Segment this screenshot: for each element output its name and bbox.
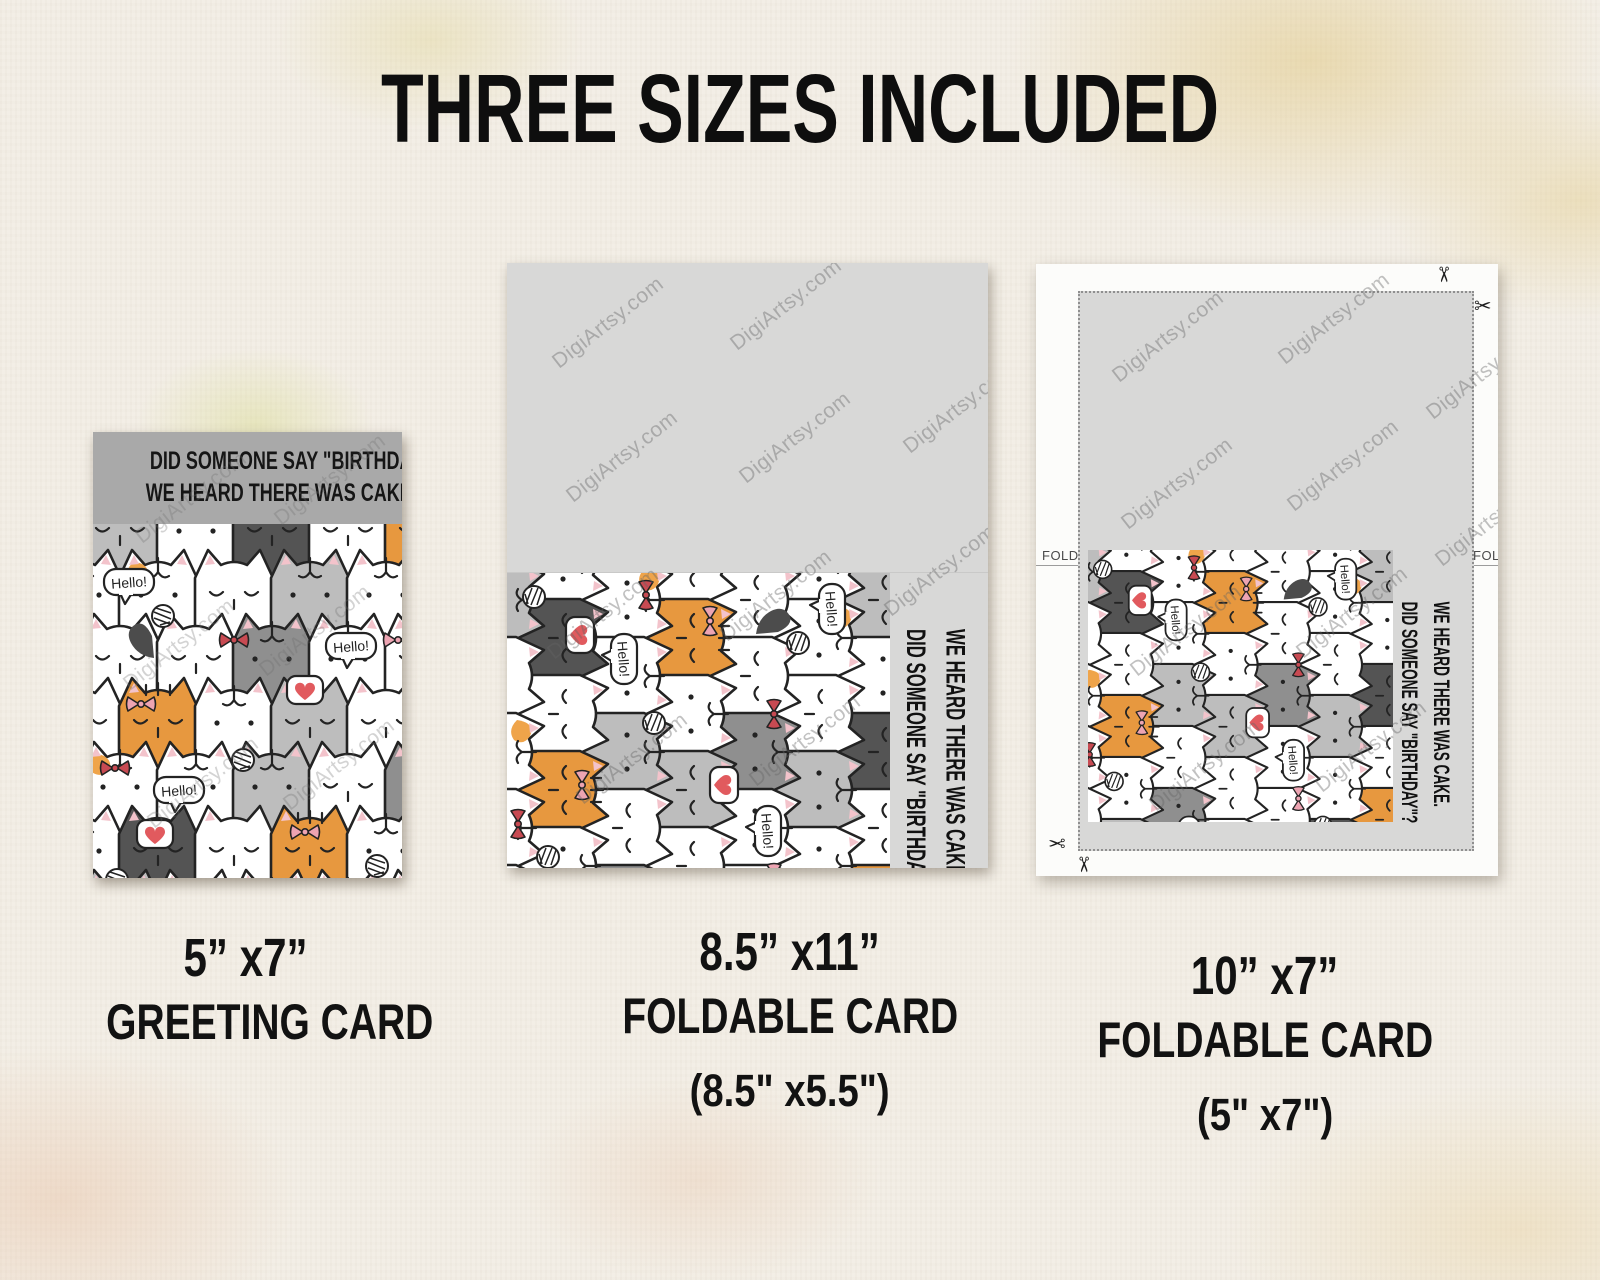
- card-front-line1: DID SOMEONE SAY "BIRTHDAY"?: [1393, 602, 1425, 771]
- card-front-line1: DID SOMEONE SAY "BIRTHDAY"?: [896, 629, 935, 812]
- scissors-icon-top-vertical: ✂: [1434, 264, 1452, 285]
- cut-area: DID SOMEONE SAY "BIRTHDAY"? WE HEARD THE…: [1078, 291, 1474, 851]
- card-back-blank: [507, 263, 988, 573]
- card-front-header-rotated: DID SOMEONE SAY "BIRTHDAY"? WE HEARD THE…: [1393, 602, 1473, 771]
- card-front-line2: WE HEARD THERE WAS CAKE.: [935, 629, 974, 812]
- type-text: FOLDABLE CARD: [1030, 1012, 1500, 1068]
- card-8-5x11-foldable: DID SOMEONE SAY "BIRTHDAY"? WE HEARD THE…: [507, 263, 988, 868]
- product-mockup-page: THREE SIZES INCLUDED DID SOMEONE SAY "BI…: [0, 0, 1600, 1280]
- card-front-line1: DID SOMEONE SAY "BIRTHDAY"?: [93, 445, 402, 477]
- size-label-foldable-8-5x11: 8.5” x11” FOLDABLE CARD (8.5" x5.5"): [555, 922, 1025, 1117]
- page-title-text: THREE SIZES INCLUDED: [381, 58, 1219, 160]
- scissors-icon-bottom-vertical: ✂: [1074, 854, 1092, 875]
- fold-line-right: [1474, 565, 1498, 566]
- card-10x7-foldable: DID SOMEONE SAY "BIRTHDAY"? WE HEARD THE…: [1036, 264, 1498, 876]
- card-front-header: DID SOMEONE SAY "BIRTHDAY"? WE HEARD THE…: [93, 432, 402, 524]
- scissors-icon-bottom-horizontal: ✂: [1048, 834, 1066, 855]
- fold-line-left: [1036, 565, 1078, 566]
- card-5x7-greeting: DID SOMEONE SAY "BIRTHDAY"? WE HEARD THE…: [93, 432, 402, 878]
- card-front-header-rotated: DID SOMEONE SAY "BIRTHDAY"? WE HEARD THE…: [890, 629, 988, 812]
- scissors-icon-top-horizontal: ✂: [1474, 296, 1492, 317]
- card-front-line2: WE HEARD THERE WAS CAKE.: [93, 477, 402, 509]
- folded-size-text: (5" x7"): [1030, 1090, 1500, 1140]
- cat-pattern: [1088, 550, 1393, 822]
- fold-label-right: FOLD: [1473, 548, 1498, 563]
- type-text: FOLDABLE CARD: [555, 988, 1025, 1044]
- size-label-foldable-10x7: 10” x7” FOLDABLE CARD (5" x7"): [1030, 946, 1500, 1141]
- size-text: 8.5” x11”: [555, 922, 1025, 982]
- type-text: GREETING CARD: [60, 994, 432, 1050]
- size-label-greeting-card: 5” x7” GREETING CARD: [60, 928, 432, 1050]
- size-text: 10” x7”: [1030, 946, 1500, 1006]
- folded-size-text: (8.5" x5.5"): [555, 1066, 1025, 1116]
- size-text: 5” x7”: [60, 928, 432, 988]
- card-front-line2: WE HEARD THERE WAS CAKE.: [1425, 602, 1457, 771]
- fold-label-left: FOLD: [1042, 548, 1079, 563]
- cat-pattern: [93, 524, 402, 878]
- page-title: THREE SIZES INCLUDED: [0, 58, 1600, 160]
- cat-pattern: [507, 573, 890, 868]
